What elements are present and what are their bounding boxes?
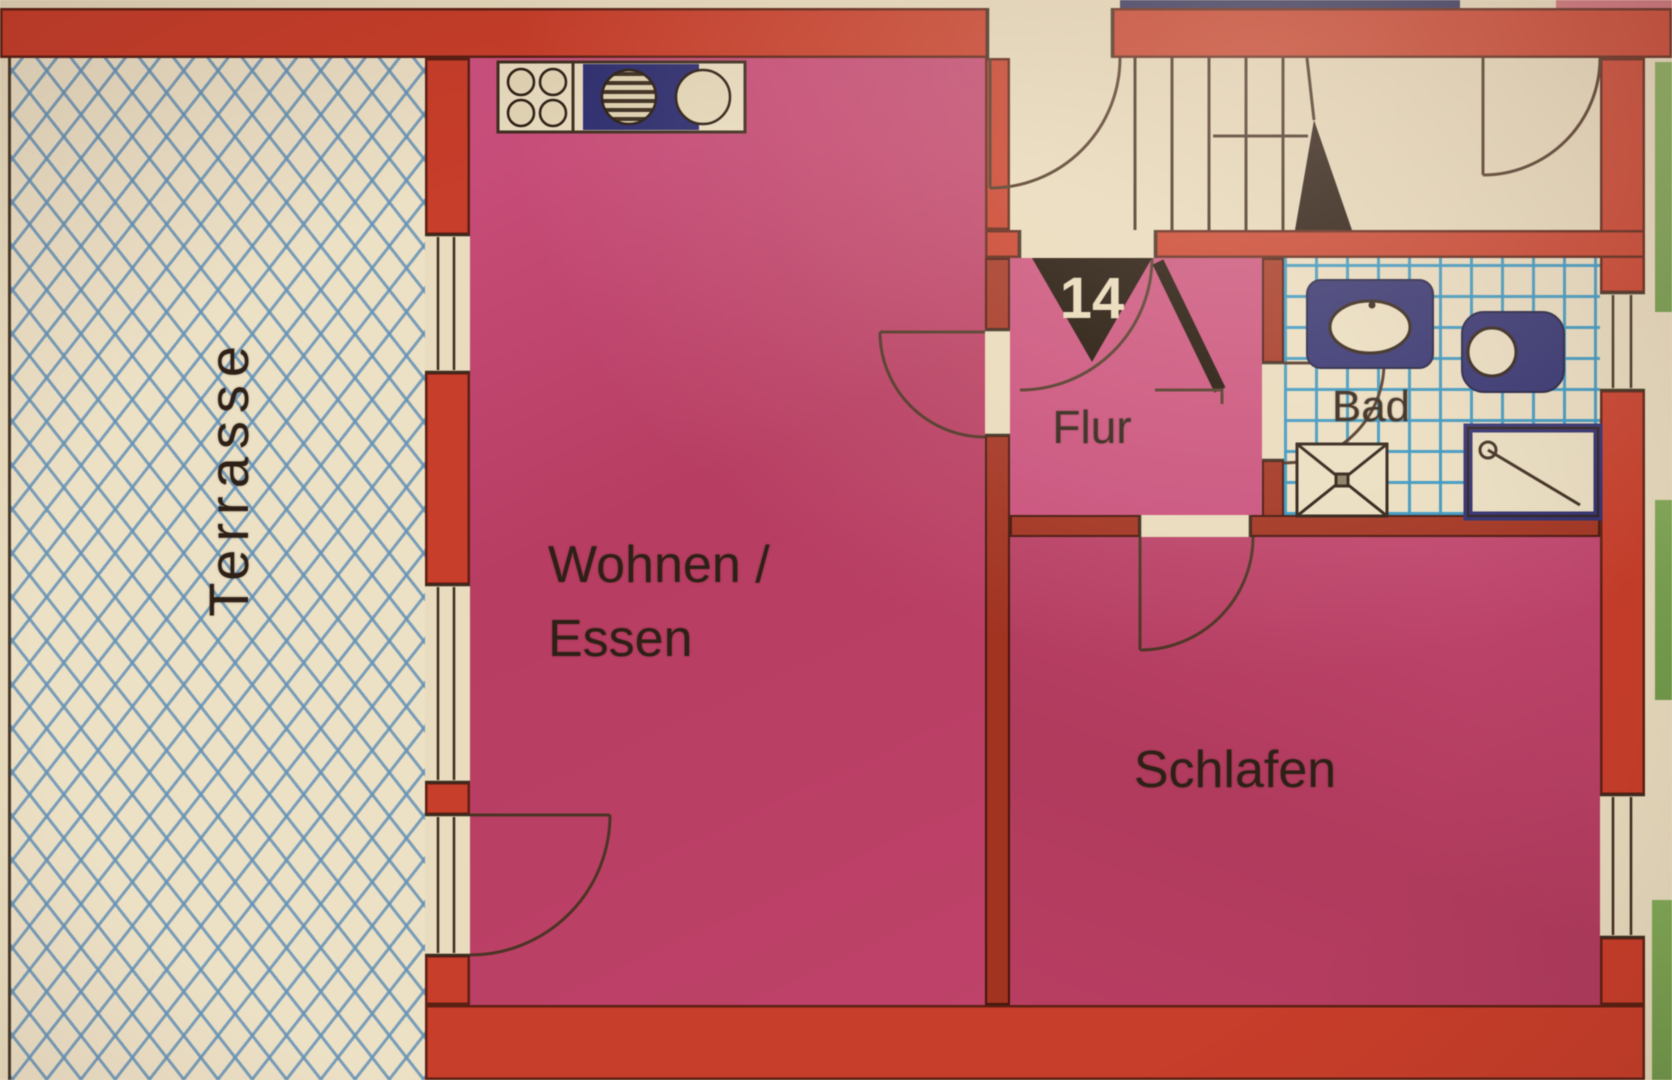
label-wohnen-line2: Essen [548, 602, 770, 676]
door-arc-schlafen [1140, 537, 1253, 650]
label-schlafen: Schlafen [1015, 740, 1455, 800]
apartment-number: 14 [1060, 266, 1125, 331]
door-arc-stairwell-left [990, 58, 1120, 188]
label-wohnen-line1: Wohnen / [548, 528, 770, 602]
kitchen-unit [498, 62, 745, 132]
toilet-icon [1462, 312, 1564, 392]
door-arc-wohnen [880, 332, 985, 437]
label-wohnen-essen: Wohnen / Essen [548, 528, 770, 676]
door-arc-stairwell-right [1483, 58, 1600, 175]
staircase-icon [1135, 58, 1352, 230]
apartment-number-marker: 14 [1032, 258, 1152, 362]
label-bad: Bad [1296, 382, 1446, 432]
washbasin-icon [1307, 280, 1433, 368]
floor-plan: 14 [0, 0, 1672, 1080]
bathtub-icon [1468, 428, 1598, 516]
label-flur: Flur [1012, 400, 1172, 454]
shower-icon [1297, 444, 1387, 516]
label-terrasse: Terrasse [196, 338, 261, 617]
door-arc-terrace [470, 815, 610, 955]
